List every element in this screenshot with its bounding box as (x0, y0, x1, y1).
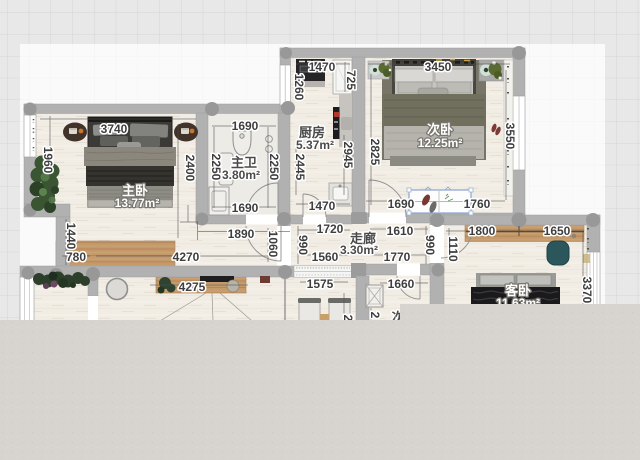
svg-text:3550: 3550 (503, 123, 517, 150)
svg-text:1690: 1690 (232, 201, 259, 215)
svg-text:1800: 1800 (469, 224, 496, 238)
svg-text:1660: 1660 (388, 277, 415, 291)
svg-text:次卧: 次卧 (427, 122, 453, 137)
svg-text:1960: 1960 (41, 147, 55, 174)
svg-text:725: 725 (344, 70, 358, 90)
svg-text:990: 990 (423, 235, 437, 255)
svg-text:3.30m²: 3.30m² (340, 243, 378, 257)
svg-text:1760: 1760 (464, 197, 491, 211)
svg-text:4270: 4270 (173, 250, 200, 264)
svg-text:1575: 1575 (307, 277, 334, 291)
svg-text:1440: 1440 (64, 223, 78, 250)
svg-text:1890: 1890 (228, 227, 255, 241)
svg-text:1060: 1060 (266, 231, 280, 258)
svg-text:2825: 2825 (368, 139, 382, 166)
svg-text:1650: 1650 (544, 224, 571, 238)
svg-text:3740: 3740 (101, 122, 128, 136)
svg-text:13.77m²: 13.77m² (115, 196, 160, 210)
svg-text:1770: 1770 (384, 250, 411, 264)
svg-text:2945: 2945 (341, 142, 355, 169)
svg-text:1260: 1260 (292, 74, 306, 101)
svg-text:12.25m²: 12.25m² (418, 136, 463, 150)
svg-text:1720: 1720 (317, 222, 344, 236)
svg-text:2250: 2250 (209, 154, 223, 181)
svg-text:1470: 1470 (309, 60, 336, 74)
svg-text:1610: 1610 (387, 224, 414, 238)
svg-text:3370: 3370 (580, 277, 594, 304)
svg-text:4275: 4275 (179, 280, 206, 294)
svg-text:990: 990 (296, 235, 310, 255)
svg-text:1690: 1690 (232, 119, 259, 133)
svg-text:1110: 1110 (446, 236, 460, 262)
svg-text:780: 780 (66, 250, 86, 264)
svg-text:3.80m²: 3.80m² (222, 168, 260, 182)
svg-text:2445: 2445 (293, 154, 307, 181)
svg-text:3450: 3450 (425, 60, 452, 74)
svg-text:1560: 1560 (312, 250, 339, 264)
svg-text:2250: 2250 (267, 154, 281, 181)
svg-text:2: 2 (368, 312, 382, 319)
svg-text:2400: 2400 (183, 155, 197, 182)
svg-text:1690: 1690 (388, 197, 415, 211)
svg-text:5.37m²: 5.37m² (296, 138, 334, 152)
svg-text:1470: 1470 (309, 199, 336, 213)
